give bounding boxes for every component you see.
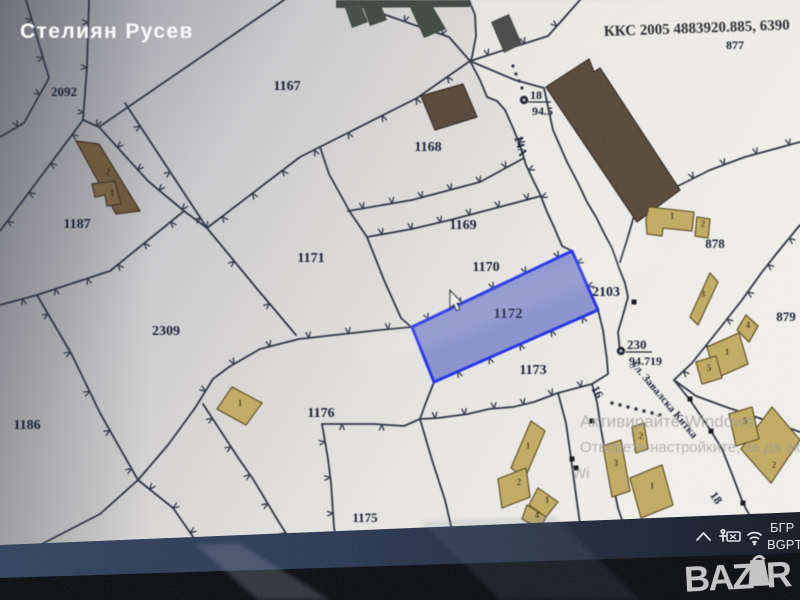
svg-text:1: 1: [650, 481, 655, 491]
svg-text:1186: 1186: [13, 418, 40, 433]
svg-text:4: 4: [746, 320, 751, 330]
svg-text:879: 879: [776, 309, 796, 324]
svg-text:2: 2: [517, 477, 522, 487]
svg-text:1: 1: [670, 211, 675, 221]
svg-text:1167: 1167: [273, 79, 300, 94]
svg-text:5: 5: [707, 363, 712, 373]
svg-text:1: 1: [526, 441, 531, 451]
svg-text:1171: 1171: [297, 251, 324, 266]
svg-text:1173: 1173: [519, 363, 546, 378]
svg-text:2092: 2092: [51, 84, 77, 99]
svg-text:1187: 1187: [63, 217, 90, 232]
svg-text:1175: 1175: [352, 510, 378, 525]
svg-text:1: 1: [238, 398, 243, 408]
svg-text:1: 1: [545, 495, 550, 505]
svg-text:1168: 1168: [414, 140, 441, 155]
svg-text:3: 3: [614, 458, 619, 468]
svg-text:2309: 2309: [152, 324, 180, 339]
svg-text:94.5: 94.5: [532, 104, 553, 118]
svg-text:18: 18: [530, 88, 542, 102]
svg-text:1170: 1170: [472, 260, 499, 275]
svg-text:3: 3: [701, 289, 706, 299]
svg-text:Wi: Wi: [572, 465, 590, 482]
svg-text:877: 877: [726, 38, 744, 52]
svg-text:2: 2: [772, 460, 777, 470]
svg-text:2103: 2103: [592, 285, 620, 300]
svg-text:БГР: БГР: [770, 520, 794, 535]
svg-text:BAZ: BAZ: [683, 555, 754, 600]
svg-text:1169: 1169: [449, 218, 476, 233]
svg-text:1: 1: [110, 188, 115, 198]
svg-text:230: 230: [627, 337, 647, 352]
svg-text:R: R: [765, 553, 793, 595]
svg-text:Отворете настройките, за да ак: Отворете настройките, за да ак: [580, 439, 800, 456]
svg-text:1: 1: [725, 347, 730, 357]
svg-text:Активирайте Windows: Активирайте Windows: [580, 412, 754, 431]
svg-text:2: 2: [701, 219, 706, 229]
svg-text:BGPT: BGPT: [767, 537, 800, 552]
svg-text:2: 2: [106, 167, 111, 177]
svg-text:878: 878: [705, 236, 725, 251]
svg-text:Стелиян Русев: Стелиян Русев: [20, 20, 194, 43]
svg-text:1176: 1176: [307, 406, 334, 421]
